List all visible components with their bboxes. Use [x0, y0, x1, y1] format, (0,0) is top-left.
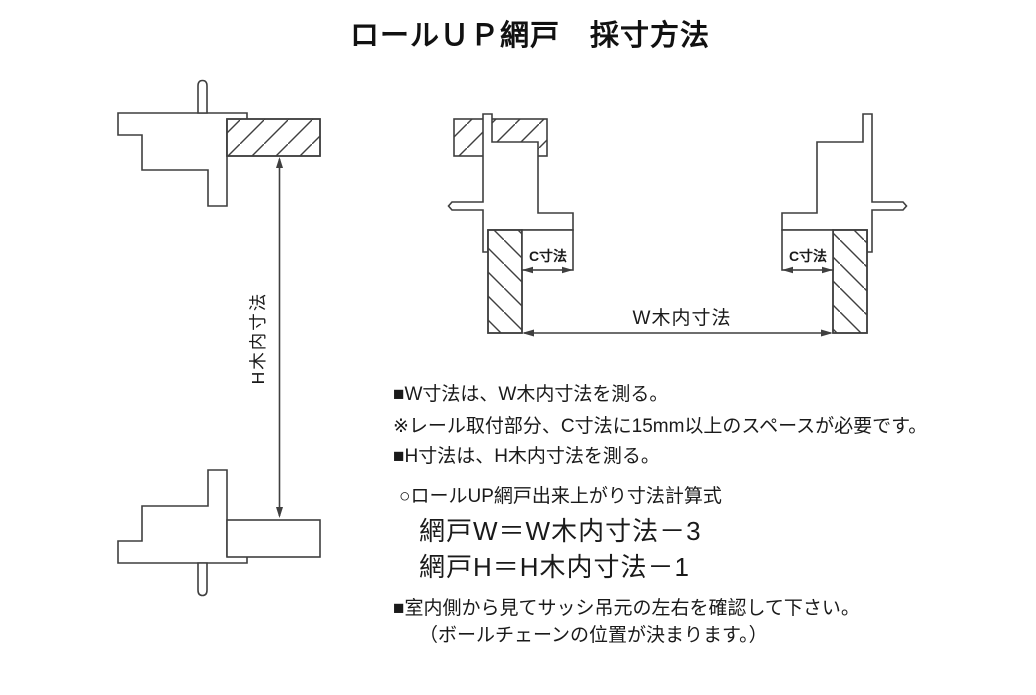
right-wood-frame-hatch — [833, 230, 867, 333]
bottom-sash-fin — [198, 563, 207, 596]
bottom-wood-frame — [227, 520, 320, 557]
formula-w: 網戸W＝W木内寸法－3 — [419, 511, 702, 548]
note-ball-chain: （ボールチェーンの位置が決まります。） — [419, 620, 768, 647]
top-wood-frame-hatch — [227, 119, 320, 156]
w-dimension-arrow-left — [522, 330, 534, 337]
measurement-diagram-svg: H木内寸法 C寸法 C寸法 W木内寸法 — [0, 0, 1036, 695]
w-dimension-label: W木内寸法 — [633, 307, 732, 329]
note-h-measure: ■H寸法は、H木内寸法を測る。 — [393, 441, 660, 468]
left-c-dimension-label: C寸法 — [529, 248, 567, 264]
left-wood-frame-hatch — [488, 230, 522, 333]
note-rail-space: ※レール取付部分、C寸法に15mm以上のスペースが必要です。 — [393, 411, 927, 438]
width-section-diagram — [449, 114, 907, 337]
formula-heading: ○ロールUP網戸出来上がり寸法計算式 — [399, 481, 722, 508]
h-dimension-arrow-up — [276, 157, 283, 168]
h-dimension-arrow-down — [276, 507, 283, 518]
note-w-measure: ■W寸法は、W木内寸法を測る。 — [393, 379, 668, 406]
right-c-dimension-label: C寸法 — [789, 248, 827, 264]
w-dimension-arrow-right — [821, 330, 833, 337]
note-hinge-side: ■室内側から見てサッシ吊元の左右を確認して下さい。 — [393, 593, 860, 620]
top-sash-fin — [198, 81, 207, 114]
formula-h: 網戸H＝H木内寸法－1 — [419, 547, 690, 584]
h-dimension-label: H木内寸法 — [248, 292, 268, 385]
